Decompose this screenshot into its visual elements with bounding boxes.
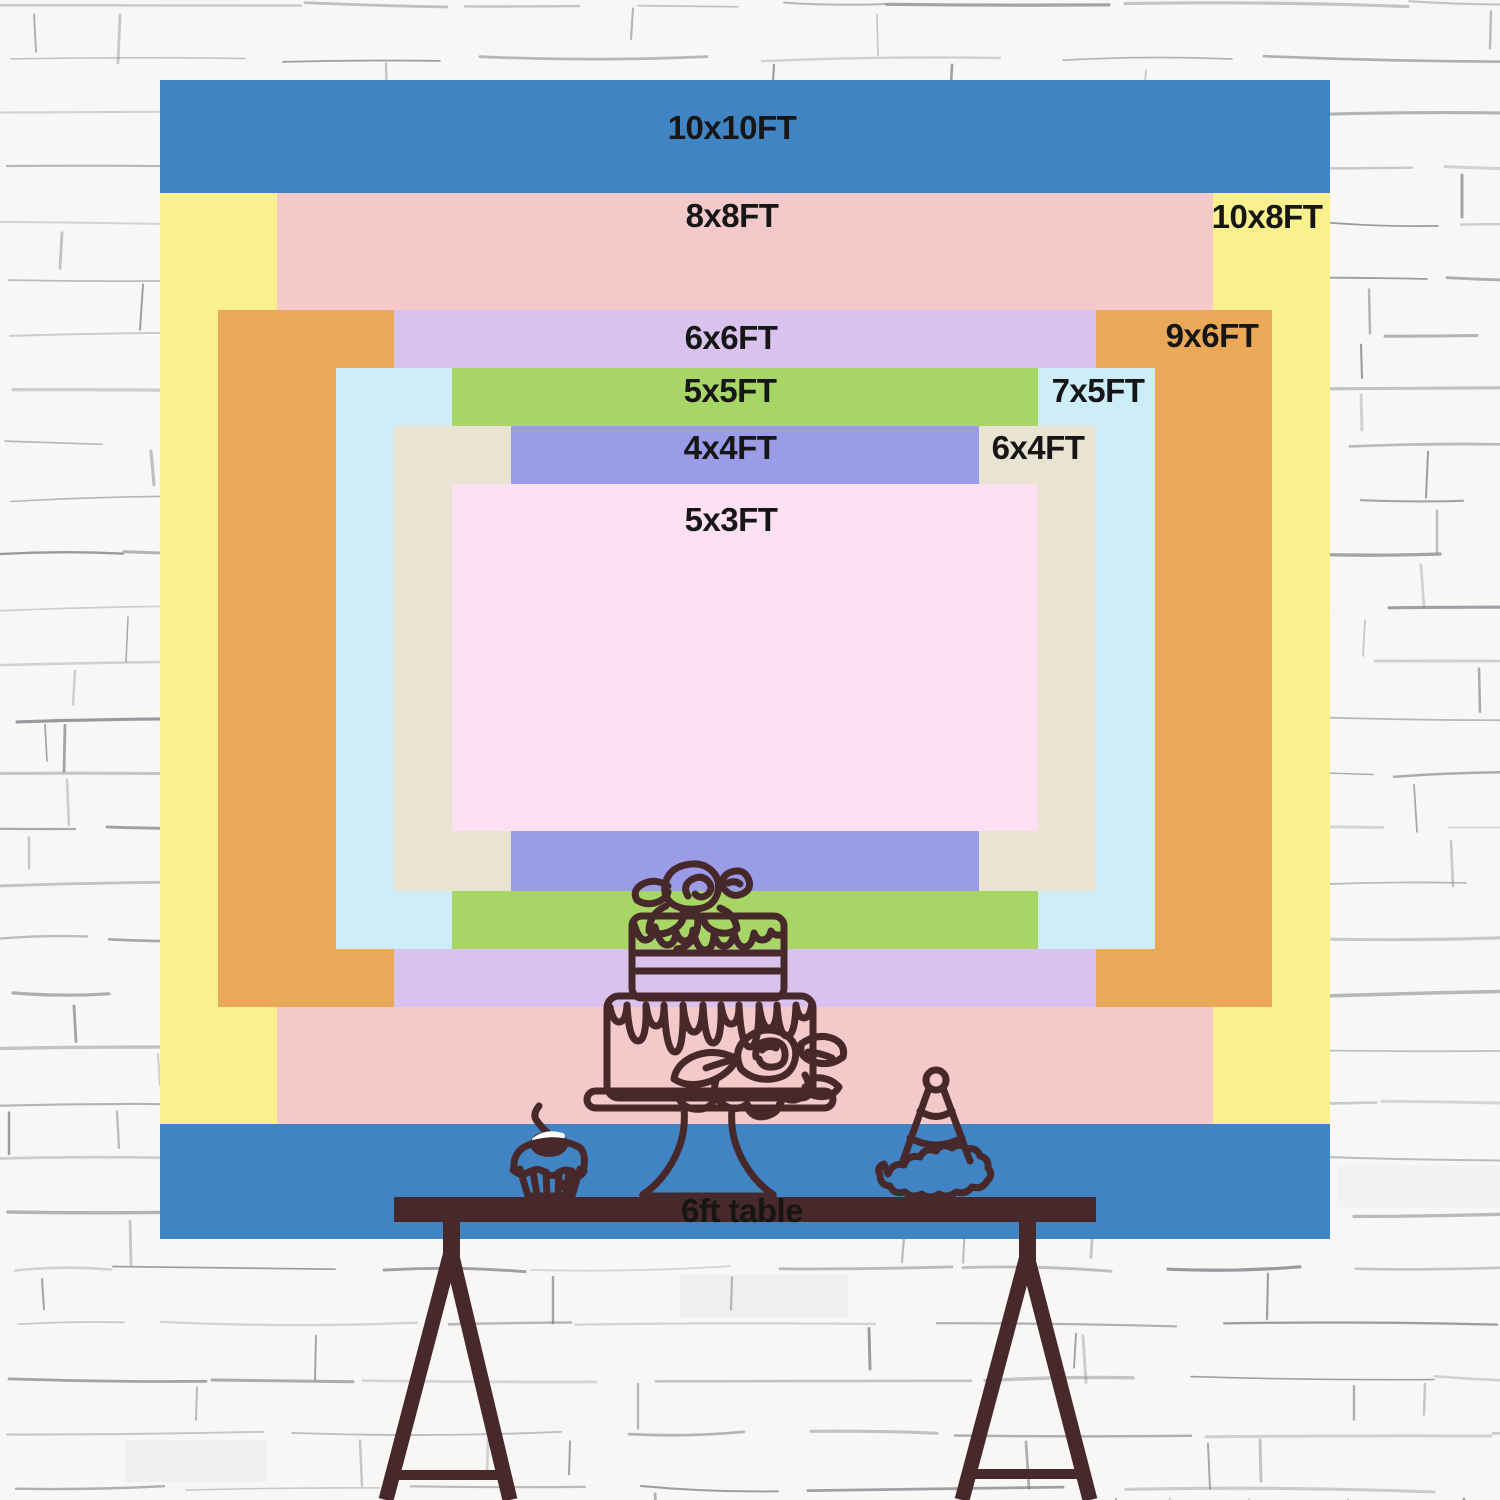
size-label-5x5ft: 5x5FT <box>684 372 777 410</box>
size-label-7x5ft: 7x5FT <box>1052 372 1145 410</box>
size-label-6x4ft: 6x4FT <box>992 429 1085 467</box>
size-label-8x8ft: 8x8FT <box>686 197 779 235</box>
size-label-10x8ft: 10x8FT <box>1212 198 1323 236</box>
size-label-5x3ft: 5x3FT <box>685 501 778 539</box>
size-labels: 10x10FT 10x8FT 8x8FT 9x6FT 6x6FT 7x5FT 5… <box>0 0 1500 1500</box>
size-label-6x6ft: 6x6FT <box>685 319 778 357</box>
size-label-4x4ft: 4x4FT <box>684 429 777 467</box>
table-size-label: 6ft table <box>681 1192 803 1230</box>
size-label-9x6ft: 9x6FT <box>1166 317 1259 355</box>
size-label-10x10ft: 10x10FT <box>668 109 797 147</box>
backdrop-size-chart: 10x10FT 10x8FT 8x8FT 9x6FT 6x6FT 7x5FT 5… <box>0 0 1500 1500</box>
